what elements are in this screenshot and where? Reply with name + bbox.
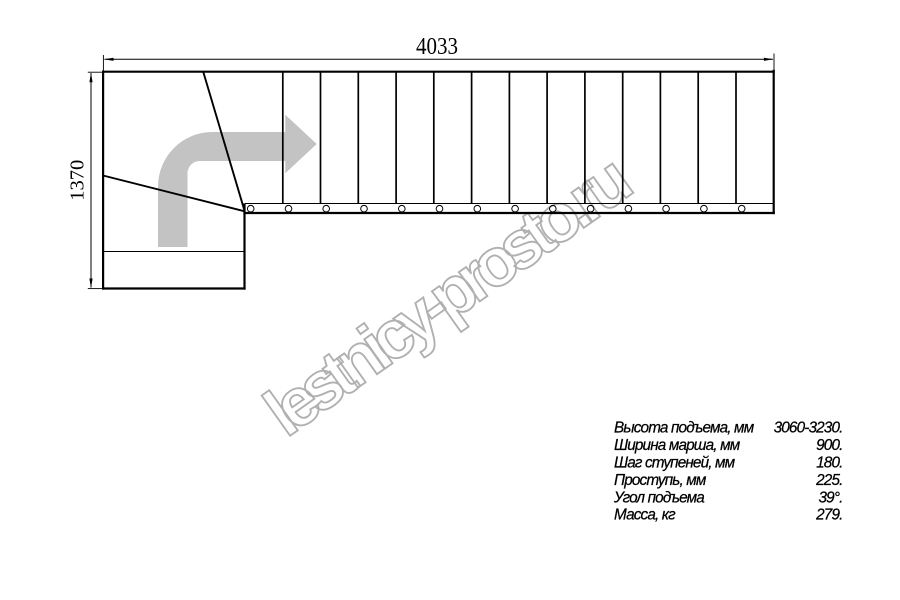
svg-text:4033: 4033 xyxy=(416,33,458,60)
svg-text:Угол подъема: Угол подъема xyxy=(613,489,704,506)
svg-text:Высота подъема, мм: Высота подъема, мм xyxy=(614,420,755,437)
svg-text:1370: 1370 xyxy=(67,160,89,201)
svg-text:39°.: 39°. xyxy=(819,489,843,506)
svg-text:Шаг ступеней, мм: Шаг ступеней, мм xyxy=(614,455,736,472)
svg-text:3060-3230.: 3060-3230. xyxy=(774,420,843,437)
svg-text:Проступь, мм: Проступь, мм xyxy=(614,472,707,489)
svg-text:Масса, кг: Масса, кг xyxy=(614,507,676,524)
svg-text:225.: 225. xyxy=(815,472,842,489)
svg-text:900.: 900. xyxy=(816,437,842,454)
svg-text:279.: 279. xyxy=(815,507,842,524)
svg-text:180.: 180. xyxy=(816,455,842,472)
svg-text:Ширина марша, мм: Ширина марша, мм xyxy=(614,437,741,454)
